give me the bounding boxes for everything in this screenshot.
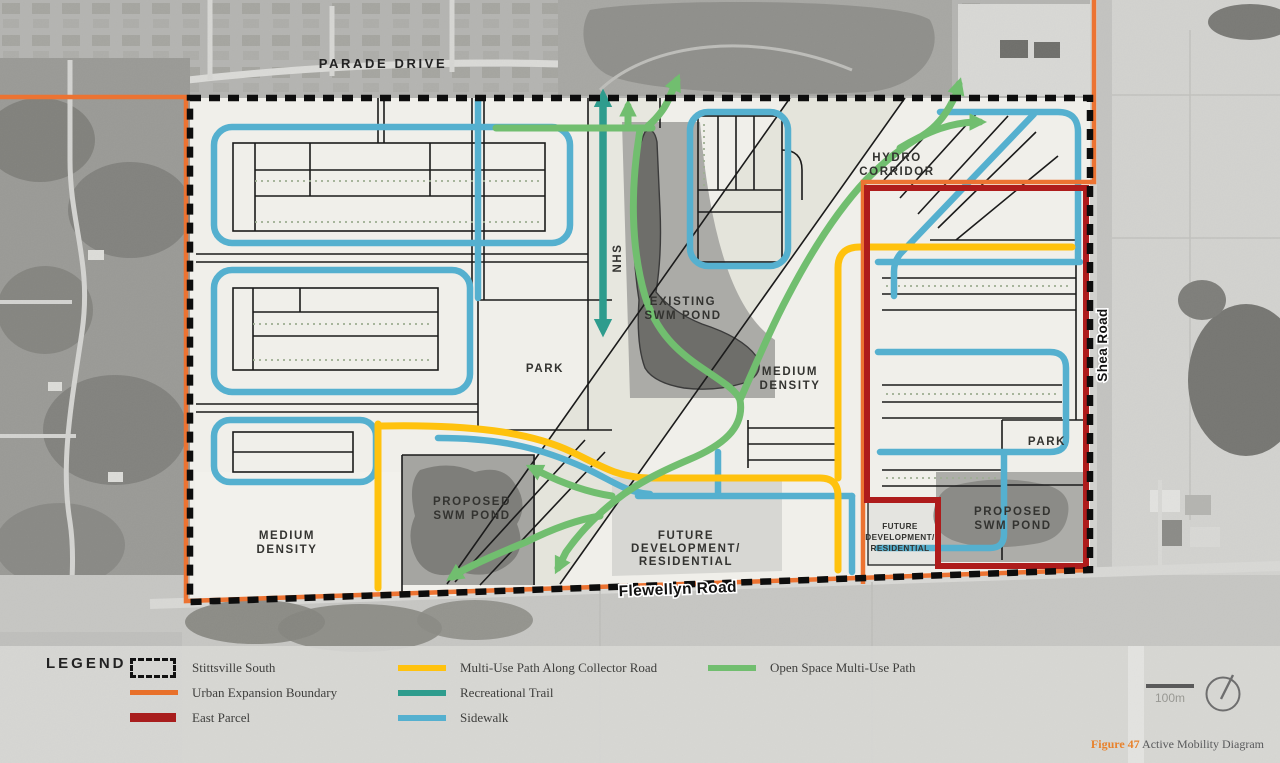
- label-park-east: PARK: [1028, 436, 1066, 448]
- legend-item-label: Recreational Trail: [460, 685, 554, 701]
- label-shea-road: Shea Road: [1095, 308, 1110, 381]
- legend-column-1: Stittsville South Urban Expansion Bounda…: [130, 655, 337, 730]
- legend-item-stittsville-south: Stittsville South: [130, 655, 337, 680]
- legend-item-open-space-path: Open Space Multi-Use Path: [708, 655, 916, 680]
- label-future-dev-center-1: FUTURE: [658, 530, 714, 542]
- legend-column-3: Open Space Multi-Use Path: [708, 655, 916, 680]
- label-hydro-corridor-2: CORRIDOR: [859, 166, 934, 178]
- label-proposed-swm-east-1: PROPOSED: [974, 506, 1052, 518]
- label-existing-swm-2: SWM POND: [644, 310, 721, 322]
- legend-item-label: Sidewalk: [460, 710, 508, 726]
- site-plan-map: PARADE DRIVE HYDRO CORRIDOR NHS EXISTING…: [0, 0, 1280, 763]
- legend-item-east-parcel: East Parcel: [130, 705, 337, 730]
- label-future-dev-east-3: RESIDENTIAL: [871, 544, 930, 553]
- legend-column-2: Multi-Use Path Along Collector Road Recr…: [398, 655, 657, 730]
- yellow-line-swatch-icon: [398, 665, 448, 671]
- north-arrow-compass-icon: [1201, 671, 1245, 717]
- blue-line-swatch-icon: [398, 715, 448, 721]
- label-medium-density-center-1: MEDIUM: [762, 366, 818, 378]
- label-parade-drive: PARADE DRIVE: [319, 56, 447, 71]
- red-line-swatch-icon: [130, 713, 180, 722]
- label-proposed-swm-east-2: SWM POND: [974, 520, 1051, 532]
- label-proposed-swm-west-2: SWM POND: [433, 510, 510, 522]
- label-hydro-corridor-1: HYDRO: [872, 152, 922, 164]
- label-existing-swm-1: EXISTING: [650, 296, 716, 308]
- figure-caption: Figure 47 Active Mobility Diagram: [1091, 737, 1264, 752]
- legend-item-sidewalk: Sidewalk: [398, 705, 657, 730]
- label-medium-density-west-2: DENSITY: [256, 544, 317, 556]
- figure-number: Figure 47: [1091, 737, 1140, 751]
- figure-title: Active Mobility Diagram: [1140, 737, 1264, 751]
- scale-label: 100m: [1142, 691, 1198, 705]
- dashed-boundary-swatch-icon: [130, 658, 180, 678]
- legend-title: LEGEND: [46, 655, 127, 672]
- label-proposed-swm-west-1: PROPOSED: [433, 496, 511, 508]
- green-line-swatch-icon: [708, 665, 758, 671]
- active-mobility-diagram: PARADE DRIVE HYDRO CORRIDOR NHS EXISTING…: [0, 0, 1280, 763]
- label-future-dev-center-2: DEVELOPMENT/: [631, 543, 741, 555]
- label-future-dev-center-3: RESIDENTIAL: [639, 556, 733, 568]
- legend-item-label: Urban Expansion Boundary: [192, 685, 337, 701]
- legend-item-label: Multi-Use Path Along Collector Road: [460, 660, 657, 676]
- legend-item-recreational-trail: Recreational Trail: [398, 680, 657, 705]
- orange-line-swatch-icon: [130, 690, 180, 695]
- label-park-central: PARK: [526, 363, 564, 375]
- legend-item-label: Open Space Multi-Use Path: [770, 660, 916, 676]
- legend-item-label: East Parcel: [192, 710, 250, 726]
- label-medium-density-center-2: DENSITY: [759, 380, 820, 392]
- label-future-dev-east-1: FUTURE: [882, 522, 918, 531]
- teal-line-swatch-icon: [398, 690, 448, 696]
- label-future-dev-east-2: DEVELOPMENT/: [865, 533, 935, 542]
- scale-bar: [1146, 684, 1194, 688]
- legend-item-urban-expansion-boundary: Urban Expansion Boundary: [130, 680, 337, 705]
- legend-item-multi-use-path: Multi-Use Path Along Collector Road: [398, 655, 657, 680]
- label-nhs: NHS: [612, 243, 624, 272]
- legend-item-label: Stittsville South: [192, 660, 275, 676]
- label-medium-density-west-1: MEDIUM: [259, 530, 315, 542]
